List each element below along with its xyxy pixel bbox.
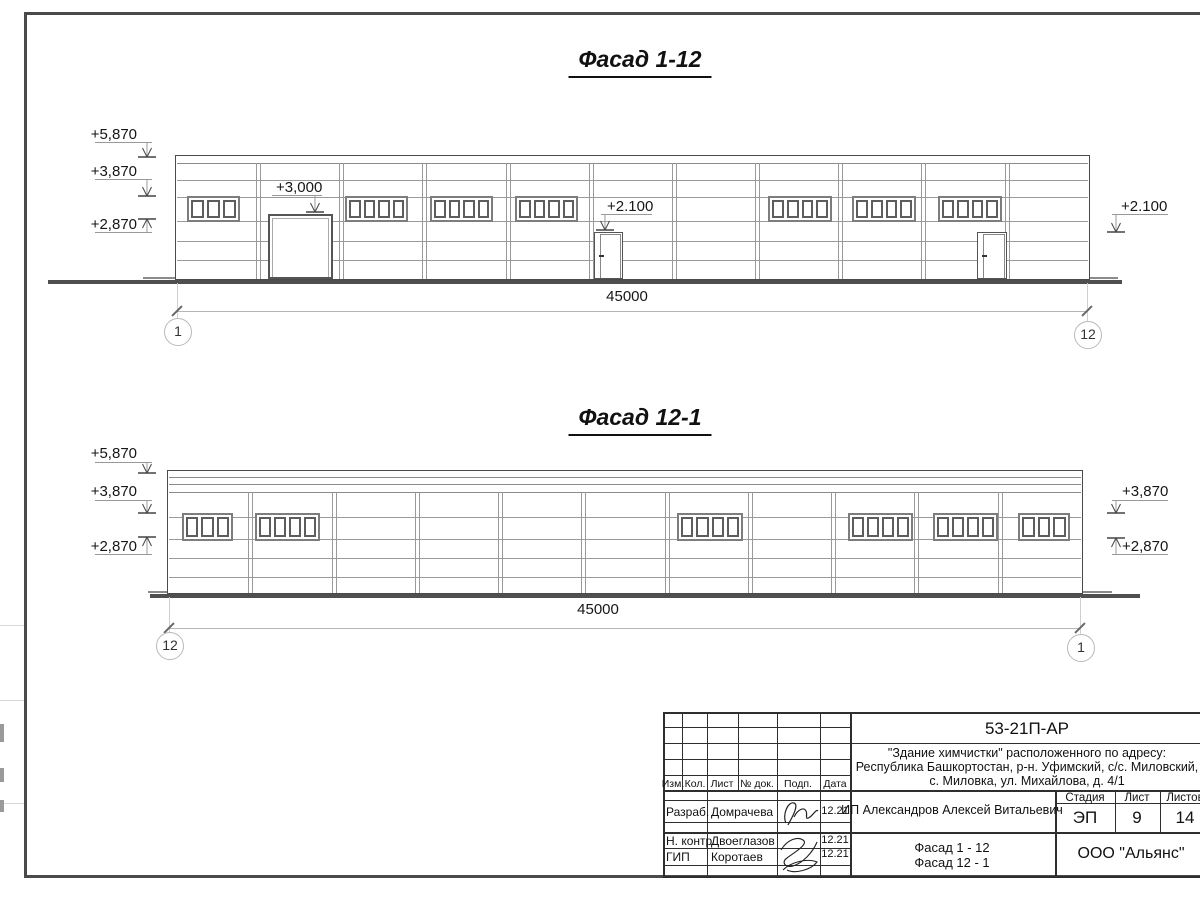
panel-joint-line xyxy=(169,558,1081,559)
column-line xyxy=(589,163,590,279)
window-pane xyxy=(937,517,949,537)
elevation-mark-value: +5,870 xyxy=(91,445,137,462)
window xyxy=(938,196,1002,222)
drawing-sheet: Фасад 1-12 Фасад 12-1 45000112+5,870+3,8… xyxy=(0,0,1200,900)
window-pane xyxy=(478,200,490,218)
elevation-arrow-icon xyxy=(1105,498,1127,525)
window-pane xyxy=(201,517,213,537)
project-address-line: "Здание химчистки" расположенного по адр… xyxy=(888,746,1166,760)
window xyxy=(768,196,832,222)
window-pane xyxy=(871,200,883,218)
window-pane xyxy=(223,200,236,218)
window xyxy=(848,513,913,541)
elevation-arrow-icon xyxy=(136,460,158,485)
window xyxy=(187,196,240,222)
elevation-arrow-icon xyxy=(1105,536,1127,566)
window-pane xyxy=(534,200,546,218)
column-line xyxy=(415,492,416,593)
elevation-arrow-icon xyxy=(304,193,326,224)
elevation-arrow-icon xyxy=(136,498,158,525)
grid-axis-bubble: 12 xyxy=(156,632,184,660)
window xyxy=(677,513,743,541)
window-pane xyxy=(772,200,784,218)
window-pane xyxy=(191,200,204,218)
signature xyxy=(777,832,823,876)
ground-line xyxy=(48,280,1122,284)
column-line xyxy=(914,492,915,593)
column-line xyxy=(343,163,344,279)
elevation-mark-value: +3,870 xyxy=(91,483,137,500)
column-line xyxy=(755,163,756,279)
elevation-mark-value: +2,870 xyxy=(91,538,137,555)
dimension-line xyxy=(169,628,1080,629)
window-pane xyxy=(852,517,864,537)
elevation-arrow-icon xyxy=(136,140,158,169)
column-line xyxy=(502,492,503,593)
elevation-mark-value: +5,870 xyxy=(91,126,137,143)
window-pane xyxy=(967,517,979,537)
col-header-podp: Подп. xyxy=(784,778,812,790)
elevation-arrow-icon xyxy=(136,535,158,566)
column-line xyxy=(831,492,832,593)
window xyxy=(515,196,578,222)
window-pane xyxy=(856,200,868,218)
grid-axis-bubble: 12 xyxy=(1074,321,1102,349)
row-role: ГИП xyxy=(666,850,690,864)
extension-line xyxy=(177,283,178,318)
window-pane xyxy=(378,200,390,218)
dimension-value: 45000 xyxy=(606,288,648,305)
window-pane xyxy=(952,517,964,537)
window-pane xyxy=(986,200,998,218)
parapet-line xyxy=(177,163,1088,164)
window xyxy=(852,196,916,222)
elevation-arrow-icon xyxy=(136,177,158,208)
column-line xyxy=(665,492,666,593)
window-pane xyxy=(289,517,301,537)
document-code: 53-21П-АР xyxy=(985,719,1069,739)
stage-label: Стадия xyxy=(1065,792,1104,804)
row-name: Коротаев xyxy=(711,850,763,864)
column-line xyxy=(339,163,340,279)
column-line xyxy=(921,163,922,279)
column-line xyxy=(581,492,582,593)
column-line xyxy=(422,163,423,279)
row-role: Разраб. xyxy=(666,805,709,819)
grid-axis-bubble: 1 xyxy=(164,318,192,346)
column-line xyxy=(426,163,427,279)
ramp xyxy=(143,277,175,279)
dimension-line xyxy=(177,311,1087,312)
column-line xyxy=(998,492,999,593)
window-pane xyxy=(802,200,814,218)
column-line xyxy=(838,163,839,279)
column-line xyxy=(256,163,257,279)
door-handle xyxy=(982,255,987,257)
column-line xyxy=(1002,492,1003,593)
window xyxy=(1018,513,1070,541)
column-line xyxy=(332,492,333,593)
column-line xyxy=(752,492,753,593)
sheets-total-label: Листов xyxy=(1166,792,1200,804)
grid-axis-bubble: 1 xyxy=(1067,634,1095,662)
window xyxy=(430,196,493,222)
window-pane xyxy=(972,200,984,218)
window-pane xyxy=(897,517,909,537)
window-pane xyxy=(787,200,799,218)
window-pane xyxy=(364,200,376,218)
window-pane xyxy=(867,517,879,537)
column-line xyxy=(842,163,843,279)
elevation-mark-value: +2.100 xyxy=(1121,198,1167,215)
col-header-list: Лист xyxy=(711,778,734,790)
window-pane xyxy=(434,200,446,218)
gate-leaf xyxy=(272,218,329,277)
column-line xyxy=(248,492,249,593)
sheet-content-title: Фасад 12 - 1 xyxy=(914,855,989,870)
window-pane xyxy=(563,200,575,218)
column-line xyxy=(260,163,261,279)
window xyxy=(255,513,320,541)
column-line xyxy=(676,163,677,279)
window-pane xyxy=(217,517,229,537)
column-line xyxy=(1009,163,1010,279)
extension-line xyxy=(1087,283,1088,321)
column-line xyxy=(419,492,420,593)
window-pane xyxy=(548,200,560,218)
column-line xyxy=(506,163,507,279)
panel-joint-line xyxy=(169,577,1081,578)
row-name: Двоеглазов xyxy=(711,834,775,848)
project-address-line: с. Миловка, ул. Михайлова, д. 4/1 xyxy=(929,774,1124,788)
col-header-izm: Изм. xyxy=(662,778,685,790)
window-pane xyxy=(696,517,708,537)
window-pane xyxy=(449,200,461,218)
row-name: Домрачева xyxy=(711,805,773,819)
column-line xyxy=(336,492,337,593)
client-name: ИП Александров Алексей Витальевич xyxy=(841,803,1063,817)
col-header-data: Дата xyxy=(823,778,846,790)
window-pane xyxy=(982,517,994,537)
sheets-total-value: 14 xyxy=(1176,808,1195,828)
column-line xyxy=(672,163,673,279)
window-pane xyxy=(1038,517,1051,537)
elevation-arrow-icon xyxy=(1105,212,1127,244)
window-pane xyxy=(304,517,316,537)
window-pane xyxy=(1053,517,1066,537)
window-pane xyxy=(259,517,271,537)
elevation-mark-value: +2,870 xyxy=(1122,538,1168,555)
row-date: 12.21 xyxy=(821,834,849,846)
ramp xyxy=(148,591,167,593)
parapet-line xyxy=(169,477,1081,478)
window-pane xyxy=(349,200,361,218)
window xyxy=(345,196,408,222)
window-pane xyxy=(882,517,894,537)
ground-line xyxy=(150,594,1140,598)
elevation-mark-value: +3,870 xyxy=(1122,483,1168,500)
window-pane xyxy=(681,517,693,537)
row-date: 12.21 xyxy=(821,848,849,860)
window-pane xyxy=(727,517,739,537)
elevation-arrow-icon xyxy=(136,217,158,244)
column-line xyxy=(585,492,586,593)
window-pane xyxy=(519,200,531,218)
elevation-arrow-icon xyxy=(594,212,616,242)
column-line xyxy=(510,163,511,279)
window-pane xyxy=(900,200,912,218)
window-pane xyxy=(942,200,954,218)
column-line xyxy=(252,492,253,593)
organization-name: ООО "Альянс" xyxy=(1078,845,1185,863)
window-pane xyxy=(886,200,898,218)
elevation-mark-value: +2,870 xyxy=(91,216,137,233)
column-line xyxy=(748,492,749,593)
window-pane xyxy=(186,517,198,537)
ramp xyxy=(1083,591,1112,593)
column-line xyxy=(925,163,926,279)
col-header-doc: № док. xyxy=(740,778,774,790)
column-line xyxy=(835,492,836,593)
column-line xyxy=(498,492,499,593)
dimension-value: 45000 xyxy=(577,601,619,618)
column-line xyxy=(918,492,919,593)
signature xyxy=(780,795,822,831)
sheet-number: 9 xyxy=(1132,808,1141,828)
window-pane xyxy=(463,200,475,218)
sheet-label: Лист xyxy=(1125,792,1150,804)
project-address-line: Республика Башкортостан, р-н. Уфимский, … xyxy=(856,760,1199,774)
row-role: Н. контр. xyxy=(666,834,716,848)
window xyxy=(182,513,233,541)
window-pane xyxy=(957,200,969,218)
window-pane xyxy=(712,517,724,537)
sheet-content-title: Фасад 1 - 12 xyxy=(914,840,989,855)
window-pane xyxy=(816,200,828,218)
window-pane xyxy=(207,200,220,218)
column-line xyxy=(759,163,760,279)
window-pane xyxy=(274,517,286,537)
door-handle xyxy=(599,255,604,257)
window-pane xyxy=(1022,517,1035,537)
window xyxy=(933,513,998,541)
entrance-door xyxy=(977,232,1007,279)
parapet-line xyxy=(169,484,1081,485)
col-header-kol: Кол. xyxy=(685,778,706,790)
column-line xyxy=(669,492,670,593)
elevation-mark-value: +3,870 xyxy=(91,163,137,180)
window-pane xyxy=(393,200,405,218)
stage-value: ЭП xyxy=(1073,808,1097,828)
parapet-line xyxy=(169,492,1081,493)
ramp xyxy=(1090,277,1118,279)
